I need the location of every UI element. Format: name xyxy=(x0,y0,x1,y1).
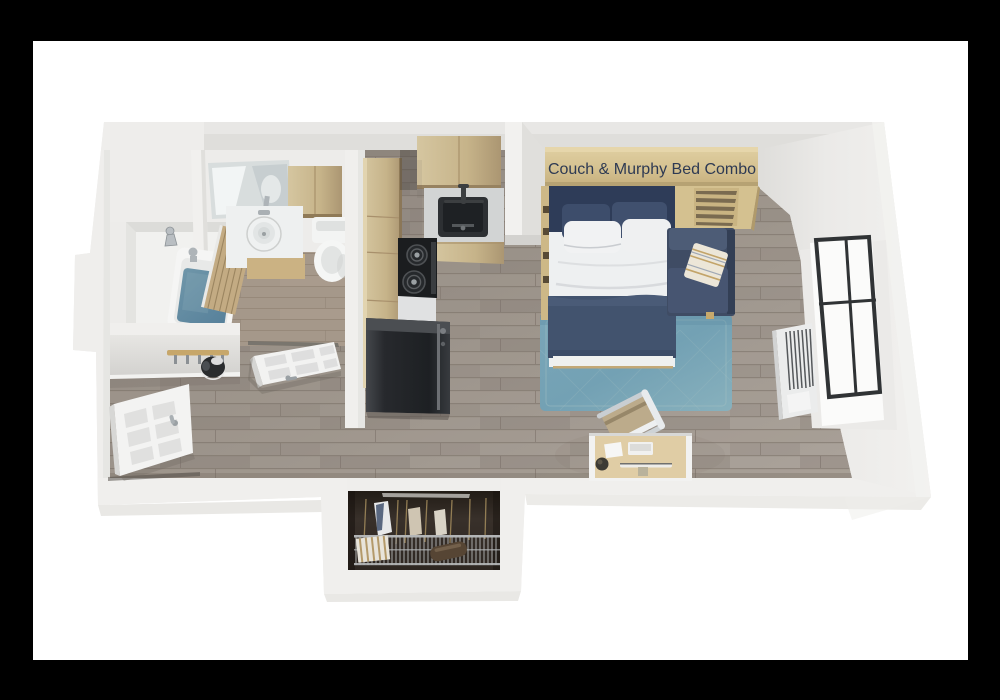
svg-text:Couch & Murphy Bed Combo: Couch & Murphy Bed Combo xyxy=(548,161,756,178)
